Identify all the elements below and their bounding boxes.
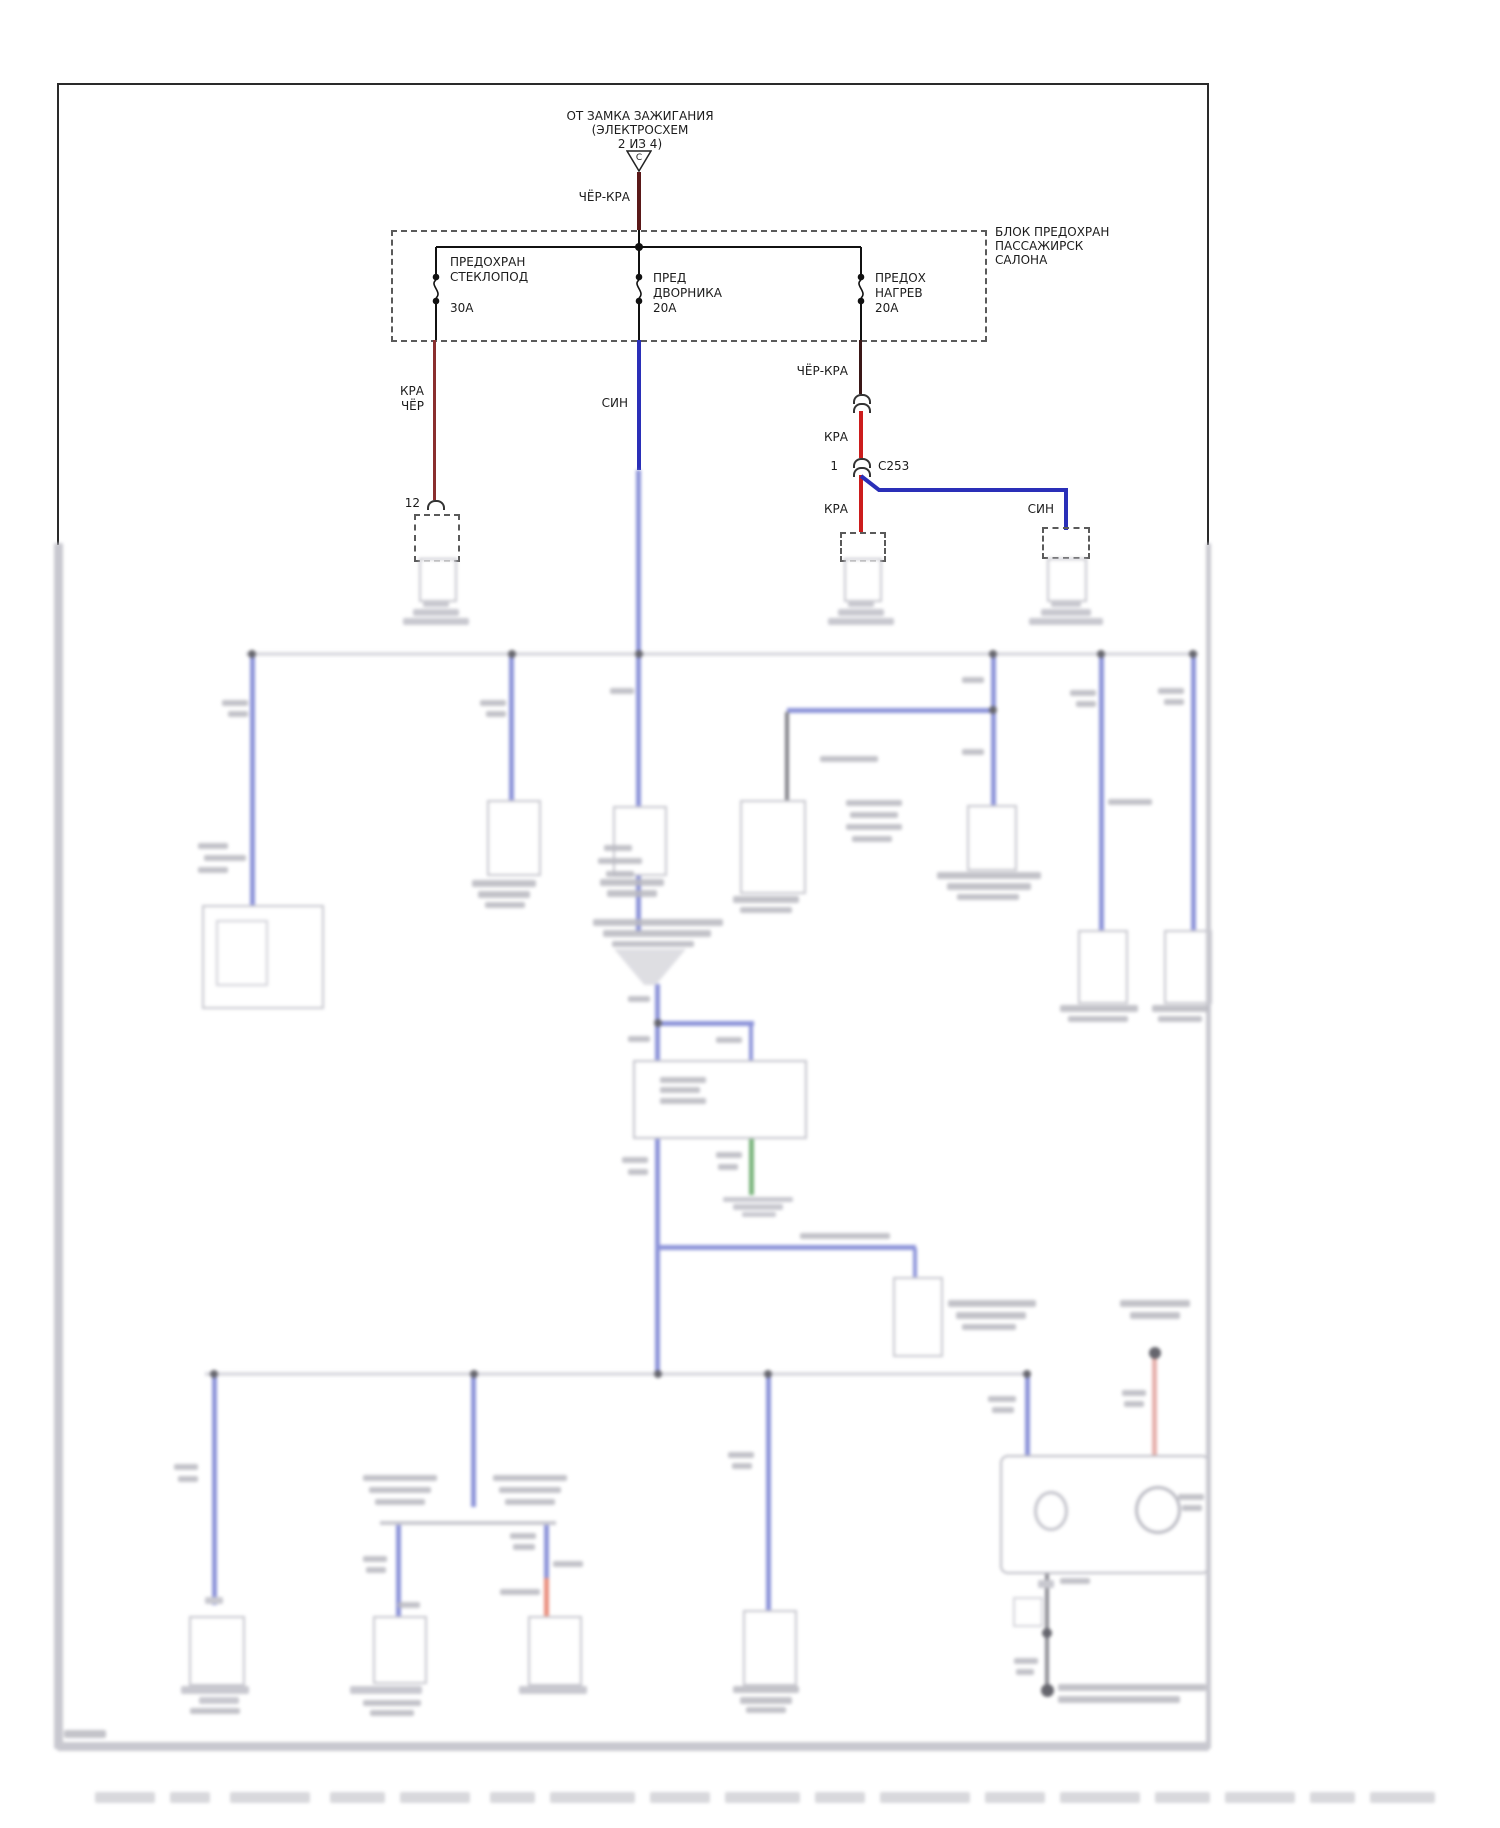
blurred-label bbox=[846, 800, 902, 806]
blurred-wire bbox=[1048, 1540, 1154, 1543]
blurred-ground-bar bbox=[1041, 609, 1091, 616]
blurred-label bbox=[733, 896, 799, 903]
fuse2-rating: 20А bbox=[653, 301, 676, 316]
source-note-line1: ОТ ЗАМКА ЗАЖИГАНИЯ bbox=[545, 109, 735, 123]
blurred-label bbox=[603, 930, 711, 937]
blurred-component-box bbox=[373, 1616, 427, 1684]
blurred-component-box bbox=[202, 905, 324, 1009]
blurred-label bbox=[174, 1464, 198, 1470]
blurred-component-box bbox=[613, 806, 667, 876]
blurred-label bbox=[486, 711, 506, 717]
blurred-label bbox=[1070, 690, 1096, 696]
wiring-diagram-screenshot: { "colors": { "wire_blue": "#2a2fb8", "w… bbox=[0, 0, 1500, 1828]
fuse3-rating: 20А bbox=[875, 301, 898, 316]
blurred-component-box bbox=[893, 1277, 943, 1357]
blurred-junction-dot bbox=[654, 1019, 662, 1027]
blurred-label bbox=[800, 1233, 890, 1239]
blurred-wire bbox=[1025, 1375, 1030, 1457]
left-branch-connector-outline bbox=[414, 514, 460, 562]
blurred-component-box bbox=[743, 1610, 797, 1686]
blurred-ground-bar bbox=[413, 609, 459, 616]
right-branch-red-label: КРА bbox=[798, 502, 848, 517]
blurred-wire bbox=[660, 1245, 916, 1250]
blurred-ground-bar bbox=[403, 618, 469, 625]
blurred-footer-text bbox=[1155, 1792, 1210, 1803]
blurred-label bbox=[1108, 799, 1152, 805]
left-branch-terminal-arc-icon bbox=[427, 500, 445, 510]
blurred-label bbox=[600, 879, 664, 886]
blurred-label bbox=[370, 1710, 414, 1716]
fuse1-name-line1: ПРЕДОХРАН bbox=[450, 255, 525, 270]
blurred-label bbox=[228, 711, 248, 717]
blurred-label bbox=[1068, 1016, 1128, 1022]
blurred-component-box bbox=[1164, 930, 1212, 1004]
blurred-footer-text bbox=[1060, 1792, 1140, 1803]
blurred-label bbox=[510, 1533, 536, 1539]
blurred-wire bbox=[785, 712, 789, 802]
blurred-label bbox=[1158, 688, 1184, 694]
blurred-label bbox=[846, 824, 902, 830]
blurred-footer-text bbox=[330, 1792, 385, 1803]
blurred-footer-text bbox=[490, 1792, 535, 1803]
blurred-label bbox=[478, 891, 530, 898]
blurred-label bbox=[363, 1556, 387, 1562]
blurred-label bbox=[716, 1037, 742, 1043]
blurred-junction-dot bbox=[508, 650, 516, 658]
blurred-label bbox=[604, 845, 632, 851]
blurred-ground-bar bbox=[54, 543, 63, 1749]
blurred-ground-bar bbox=[181, 1686, 249, 1694]
source-note-line2: (ЭЛЕКТРОСХЕМ bbox=[545, 123, 735, 137]
blurred-ground-bar bbox=[742, 1212, 776, 1217]
blurred-junction-dot bbox=[1023, 1370, 1031, 1378]
fuse2-bottom-stub bbox=[638, 303, 640, 340]
blurred-symbol-circle bbox=[1034, 1491, 1068, 1531]
blurred-label bbox=[369, 1487, 431, 1493]
blurred-label bbox=[850, 812, 898, 818]
offpage-connector-triangle-icon: C bbox=[626, 150, 652, 173]
blurred-wire bbox=[991, 655, 996, 807]
blurred-label bbox=[363, 1700, 421, 1706]
blurred-wire bbox=[747, 1077, 751, 1109]
blurred-wire bbox=[246, 652, 1198, 656]
fuse1-name-line2: СТЕКЛОПОД bbox=[450, 270, 528, 285]
blurred-wire bbox=[396, 1525, 401, 1618]
blurred-label bbox=[628, 1169, 648, 1175]
blurred-ground-bar bbox=[1038, 1580, 1054, 1588]
blurred-wire bbox=[250, 655, 255, 907]
blurred-label bbox=[198, 867, 228, 873]
right-branch-upper-wire-label: ЧЁР-КРА bbox=[768, 364, 848, 379]
blurred-label bbox=[728, 1452, 754, 1458]
fuse3-symbol-icon bbox=[852, 272, 870, 306]
blurred-component-box bbox=[419, 558, 457, 602]
blurred-wire bbox=[1099, 655, 1104, 932]
blurred-label bbox=[992, 1407, 1014, 1413]
blurred-label bbox=[598, 858, 642, 864]
blurred-ground-bar bbox=[733, 1204, 783, 1210]
fuse3-name-line2: НАГРЕВ bbox=[875, 286, 923, 301]
blurred-label bbox=[513, 1544, 535, 1550]
blurred-ground-bar bbox=[828, 618, 894, 625]
blurred-component-box bbox=[216, 920, 268, 986]
blurred-label bbox=[740, 907, 792, 913]
blurred-footer-text bbox=[815, 1792, 865, 1803]
blurred-junction-dot bbox=[1041, 1684, 1054, 1697]
blurred-symbol-circle bbox=[1135, 1486, 1181, 1534]
right-branch-mid-wire-label: КРА bbox=[798, 430, 848, 445]
blurred-label bbox=[852, 836, 892, 842]
blurred-label bbox=[493, 1475, 567, 1481]
blurred-junction-dot bbox=[1149, 1347, 1161, 1359]
blurred-label bbox=[472, 880, 536, 887]
blurred-label bbox=[988, 1396, 1016, 1402]
blurred-ground-bar bbox=[838, 609, 884, 616]
blurred-label bbox=[622, 1157, 648, 1163]
blurred-label bbox=[1076, 701, 1096, 707]
blurred-footer-text bbox=[95, 1792, 155, 1803]
blurred-wire bbox=[1008, 1457, 1041, 1485]
blurred-label bbox=[947, 883, 1031, 890]
left-branch-wire-label: КРА ЧЁР bbox=[378, 384, 424, 414]
blurred-footer-text bbox=[230, 1792, 310, 1803]
blurred-label bbox=[398, 1602, 420, 1608]
blurred-label bbox=[553, 1561, 583, 1567]
blurred-wire bbox=[749, 1135, 754, 1195]
blurred-label bbox=[64, 1730, 106, 1738]
blurred-component-box bbox=[740, 800, 806, 894]
blurred-footer-text bbox=[650, 1792, 710, 1803]
blurred-label bbox=[363, 1475, 437, 1481]
blurred-label bbox=[733, 1686, 799, 1693]
blurred-wire bbox=[1191, 655, 1196, 932]
right-branch-blue-label: СИН bbox=[1010, 502, 1054, 517]
blurred-label bbox=[628, 996, 650, 1002]
blurred-ground-bar bbox=[1029, 618, 1103, 625]
blurred-label bbox=[1058, 1684, 1206, 1691]
blurred-wire bbox=[1152, 1358, 1157, 1457]
blurred-component-box bbox=[1078, 930, 1128, 1004]
blurred-label bbox=[610, 688, 634, 694]
fuse3-bottom-stub bbox=[860, 303, 862, 340]
blurred-junction-dot bbox=[989, 650, 997, 658]
blurred-label bbox=[1124, 1401, 1144, 1407]
blurred-wire bbox=[1045, 1570, 1049, 1688]
blurred-label bbox=[499, 1487, 561, 1493]
blurred-wire bbox=[205, 1372, 1029, 1376]
blurred-label bbox=[628, 1036, 650, 1042]
right-branch-wire-black-red bbox=[859, 340, 862, 394]
fuse-block-title-line2: ПАССАЖИРСК bbox=[995, 239, 1109, 253]
blurred-component-box bbox=[844, 558, 882, 602]
blurred-label bbox=[222, 700, 248, 706]
right-branch-blue-elbow-wire bbox=[856, 470, 1072, 532]
fuse3-name-line1: ПРЕДОХ bbox=[875, 271, 926, 286]
blurred-component-box bbox=[967, 805, 1017, 871]
blurred-wire bbox=[636, 470, 641, 657]
blurred-ground-bar bbox=[57, 1742, 1209, 1751]
fuse2-symbol-icon bbox=[630, 272, 648, 306]
fuse2-name-line1: ПРЕД bbox=[653, 271, 686, 286]
blurred-junction-dot bbox=[1189, 650, 1197, 658]
fuse3-top-stub bbox=[860, 247, 862, 275]
right-blue-connector-outline bbox=[1042, 527, 1090, 559]
blurred-label bbox=[606, 871, 634, 877]
blurred-label bbox=[1016, 1669, 1034, 1675]
feed-wire-label: ЧЁР-КРА bbox=[548, 190, 630, 205]
source-note: ОТ ЗАМКА ЗАЖИГАНИЯ (ЭЛЕКТРОСХЕМ 2 ИЗ 4) bbox=[545, 109, 735, 151]
blurred-component-box bbox=[189, 1616, 245, 1686]
blurred-label bbox=[505, 1499, 555, 1505]
left-branch-wire-label-line2: ЧЁР bbox=[378, 399, 424, 414]
blurred-label bbox=[366, 1567, 386, 1573]
blurred-junction-dot bbox=[210, 1370, 218, 1378]
blurred-junction-dot bbox=[764, 1370, 772, 1378]
blurred-wire bbox=[509, 655, 514, 802]
blurred-footer-text bbox=[400, 1792, 470, 1803]
fuse1-symbol-icon bbox=[427, 272, 445, 306]
blurred-label bbox=[948, 1300, 1036, 1307]
blurred-label bbox=[500, 1589, 540, 1595]
fuse2-name-line2: ДВОРНИКА bbox=[653, 286, 722, 301]
blurred-ground-bar bbox=[205, 1597, 223, 1604]
blurred-label bbox=[1122, 1390, 1146, 1396]
blurred-label bbox=[593, 919, 723, 926]
blurred-component-box bbox=[528, 1616, 582, 1686]
blurred-component-box bbox=[633, 1060, 807, 1139]
blurred-label bbox=[740, 1697, 792, 1704]
blurred-label bbox=[190, 1708, 240, 1714]
blurred-label bbox=[1164, 699, 1184, 705]
blurred-wire bbox=[636, 655, 641, 932]
blurred-wire bbox=[787, 708, 995, 713]
sheet-border-right bbox=[1207, 83, 1209, 545]
blurred-label bbox=[660, 1098, 706, 1104]
blurred-junction-dot bbox=[248, 650, 256, 658]
blurred-label bbox=[1060, 1578, 1090, 1584]
blurred-label bbox=[1058, 1696, 1180, 1703]
left-branch-pin: 12 bbox=[398, 496, 420, 511]
source-note-line3: 2 ИЗ 4) bbox=[545, 137, 735, 151]
blurred-label bbox=[198, 843, 228, 849]
connector-letter: C bbox=[636, 153, 642, 163]
blurred-wire bbox=[471, 1375, 476, 1507]
blurred-ground-bar bbox=[1051, 600, 1081, 607]
blurred-label bbox=[178, 1476, 198, 1482]
fuse-bus-wire bbox=[436, 246, 861, 248]
blurred-label bbox=[480, 700, 506, 706]
blurred-label bbox=[612, 941, 694, 947]
blurred-junction-dot bbox=[989, 706, 997, 714]
blurred-ground-bar bbox=[423, 600, 449, 607]
blurred-ground-bar bbox=[1206, 543, 1211, 1749]
blurred-junction-dot bbox=[635, 650, 643, 658]
blurred-label bbox=[607, 890, 657, 897]
blurred-label bbox=[485, 902, 525, 908]
blurred-wire bbox=[544, 1578, 549, 1620]
blurred-junction-dot bbox=[1042, 1628, 1052, 1638]
sheet-border-top bbox=[57, 83, 1209, 85]
blurred-label bbox=[1060, 1005, 1138, 1012]
blurred-wire bbox=[655, 984, 660, 1376]
blurred-label bbox=[1130, 1312, 1180, 1319]
blurred-junction-dot bbox=[470, 1370, 478, 1378]
blurred-ground-bar bbox=[350, 1686, 422, 1694]
blurred-junction-dot bbox=[654, 1370, 662, 1378]
fuse-block-title: БЛОК ПРЕДОХРАН ПАССАЖИРСК САЛОНА bbox=[995, 225, 1109, 267]
blurred-footer-text bbox=[725, 1792, 800, 1803]
blurred-ground-bar bbox=[848, 600, 874, 607]
blurred-label bbox=[732, 1463, 752, 1469]
blurred-label bbox=[962, 749, 984, 755]
blurred-label bbox=[1158, 1016, 1202, 1022]
blurred-junction-dot bbox=[1097, 650, 1105, 658]
blurred-ground-bar bbox=[199, 1697, 239, 1704]
left-branch-wire-red-black bbox=[433, 340, 436, 500]
fuse-block-title-line3: САЛОНА bbox=[995, 253, 1109, 267]
blurred-component-box bbox=[1000, 1455, 1210, 1574]
blurred-label bbox=[820, 756, 878, 762]
center-branch-wire-blue bbox=[637, 340, 641, 470]
sheet-border-left bbox=[57, 83, 59, 545]
blurred-wire bbox=[913, 1248, 917, 1279]
blurred-component-box bbox=[1047, 558, 1087, 602]
blurred-footer-text bbox=[1310, 1792, 1355, 1803]
blurred-label bbox=[1120, 1300, 1190, 1307]
blurred-label bbox=[660, 1077, 706, 1083]
blurred-footer-text bbox=[1370, 1792, 1435, 1803]
blurred-component-box bbox=[487, 800, 541, 876]
blurred-component-box bbox=[1013, 1597, 1043, 1627]
blurred-wire bbox=[657, 1021, 754, 1026]
fuse2-top-stub bbox=[638, 247, 640, 275]
blurred-label bbox=[1178, 1494, 1204, 1500]
blurred-wire bbox=[706, 1085, 748, 1095]
blurred-label bbox=[746, 1707, 786, 1713]
blurred-footer-text bbox=[170, 1792, 210, 1803]
blurred-label bbox=[957, 894, 1019, 900]
fuse-block-title-line1: БЛОК ПРЕДОХРАН bbox=[995, 225, 1109, 239]
left-branch-wire-label-line1: КРА bbox=[378, 384, 424, 399]
blurred-label bbox=[375, 1499, 425, 1505]
fuse1-top-stub bbox=[435, 247, 437, 275]
blurred-wire bbox=[749, 1026, 753, 1062]
blurred-label bbox=[204, 855, 246, 861]
blurred-footer-text bbox=[880, 1792, 970, 1803]
blurred-connector-wedge bbox=[614, 949, 686, 985]
fuse1-bottom-stub bbox=[435, 303, 437, 340]
blurred-label bbox=[660, 1087, 700, 1093]
center-branch-wire-label: СИН bbox=[583, 396, 628, 411]
blurred-label bbox=[718, 1164, 738, 1170]
blurred-label bbox=[956, 1312, 1026, 1319]
blurred-wire bbox=[544, 1525, 549, 1580]
blurred-footer-text bbox=[1225, 1792, 1295, 1803]
blurred-footer-text bbox=[550, 1792, 635, 1803]
fuse1-rating: 30А bbox=[450, 301, 473, 316]
blurred-ground-bar bbox=[519, 1686, 587, 1694]
c253-pin: 1 bbox=[822, 459, 838, 474]
blurred-wire bbox=[212, 1375, 217, 1605]
blurred-label bbox=[1182, 1505, 1202, 1511]
blurred-label bbox=[716, 1152, 742, 1158]
blurred-wire bbox=[380, 1521, 556, 1525]
feed-wire-black-red bbox=[637, 172, 641, 230]
right-branch-wire-red-mid bbox=[859, 411, 863, 458]
blurred-label bbox=[962, 677, 984, 683]
blurred-footer-text bbox=[985, 1792, 1045, 1803]
blurred-label bbox=[1152, 1005, 1208, 1012]
blurred-wire bbox=[766, 1375, 771, 1612]
blurred-label bbox=[962, 1324, 1016, 1330]
blurred-ground-bar bbox=[723, 1197, 793, 1202]
blurred-label bbox=[1014, 1658, 1038, 1664]
right-red-connector-outline bbox=[840, 532, 886, 562]
blurred-label bbox=[937, 872, 1041, 879]
